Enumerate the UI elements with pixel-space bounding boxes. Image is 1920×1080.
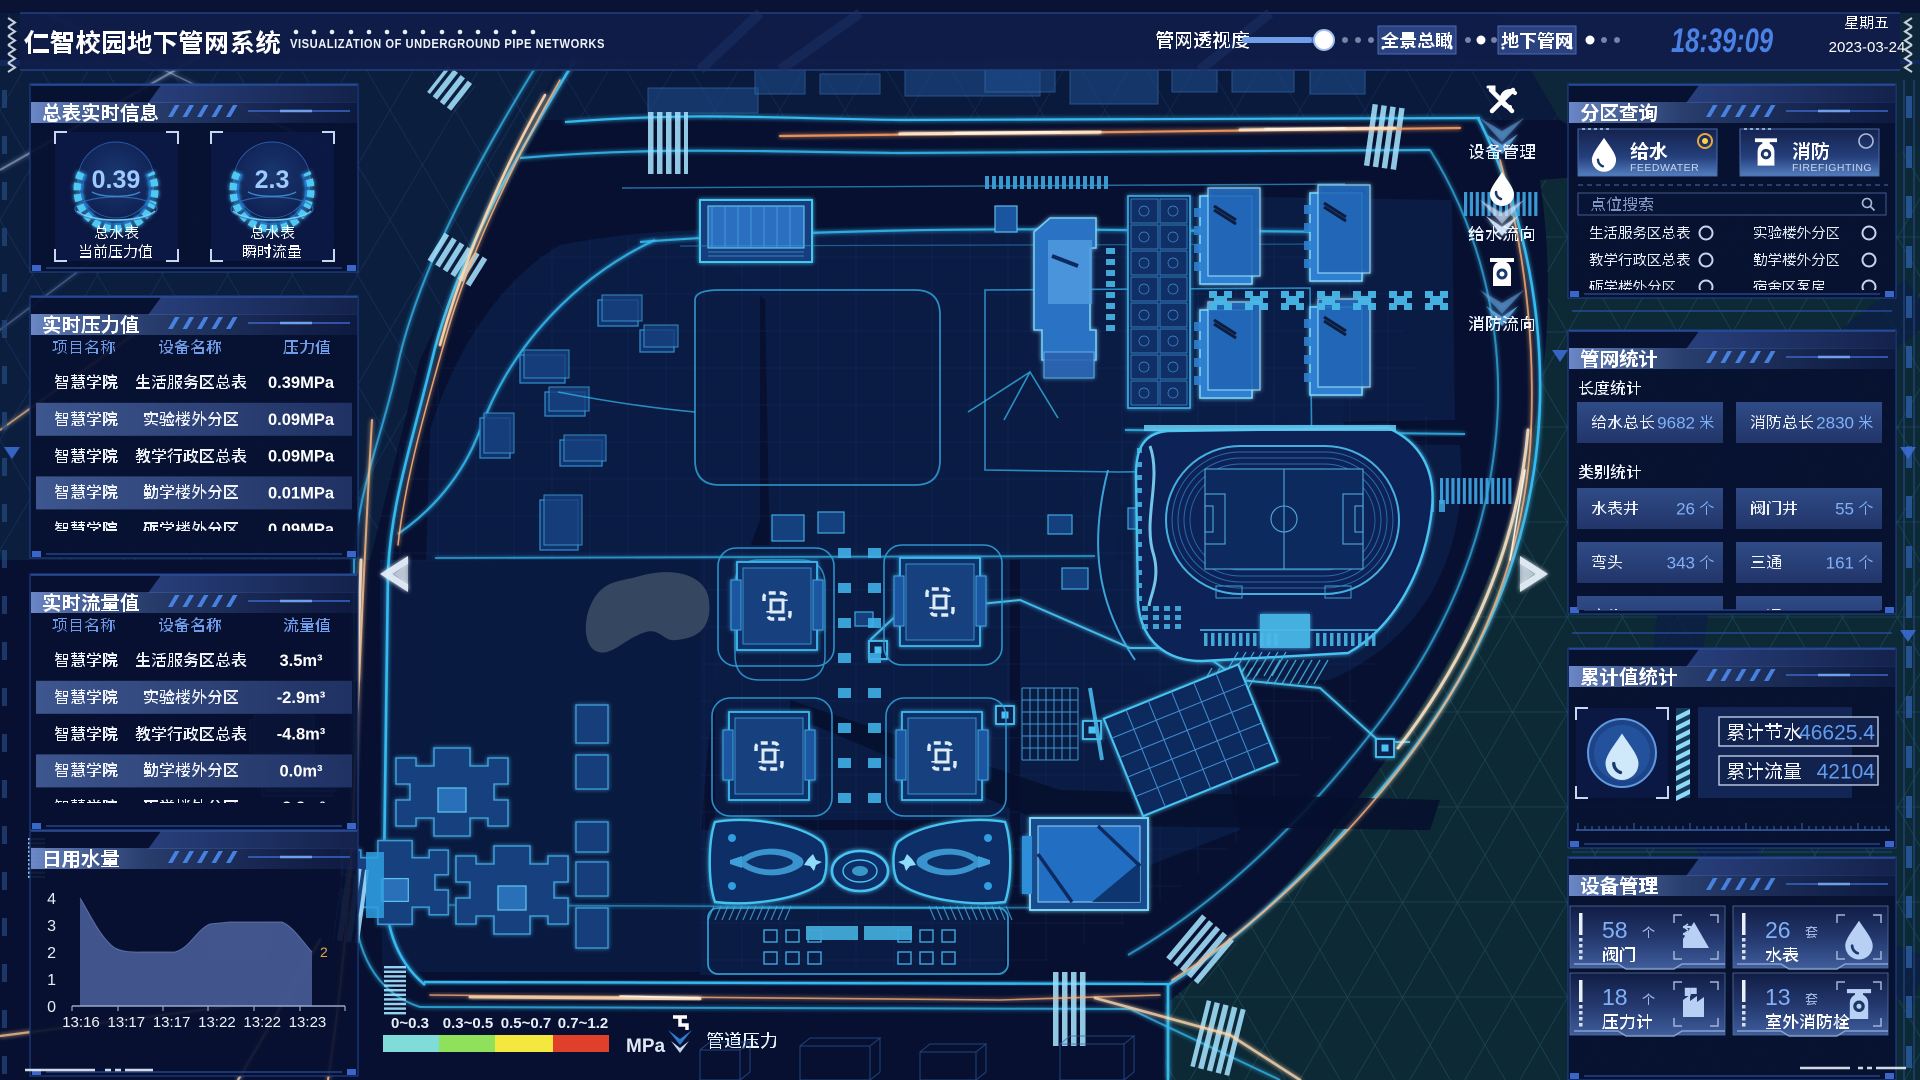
- svg-text:0.09MPa: 0.09MPa: [268, 411, 335, 429]
- svg-text:161: 161: [1826, 554, 1854, 573]
- svg-text:3.5m³: 3.5m³: [279, 652, 323, 670]
- svg-text:3: 3: [47, 918, 56, 935]
- svg-text:0.09MPa: 0.09MPa: [268, 448, 335, 466]
- svg-text:13: 13: [1765, 984, 1791, 1010]
- svg-text:0.0m³: 0.0m³: [279, 762, 323, 780]
- svg-text:26: 26: [1676, 500, 1695, 519]
- svg-text:46625.4: 46625.4: [1799, 722, 1875, 745]
- svg-text:2.3: 2.3: [255, 166, 290, 194]
- svg-text:MPa: MPa: [626, 1036, 666, 1057]
- svg-text:55: 55: [1835, 500, 1854, 519]
- svg-text:13:17: 13:17: [153, 1014, 191, 1031]
- svg-text:2830: 2830: [1816, 414, 1854, 433]
- svg-text:0: 0: [47, 999, 56, 1016]
- svg-text:0~0.3: 0~0.3: [391, 1015, 429, 1032]
- svg-text:0.3~0.5: 0.3~0.5: [443, 1015, 493, 1032]
- svg-text:2: 2: [320, 944, 328, 960]
- svg-text:42104: 42104: [1817, 761, 1876, 784]
- svg-text:-2.9m³: -2.9m³: [277, 689, 326, 707]
- svg-text:13:22: 13:22: [198, 1014, 236, 1031]
- svg-text:9682: 9682: [1657, 414, 1695, 433]
- svg-text:13:17: 13:17: [108, 1014, 146, 1031]
- svg-text:0.01MPa: 0.01MPa: [268, 484, 335, 502]
- svg-text:2: 2: [47, 945, 56, 962]
- svg-text:2023-03-24: 2023-03-24: [1829, 39, 1906, 56]
- svg-text:13:23: 13:23: [289, 1014, 327, 1031]
- svg-text:VISUALIZATION OF UNDERGROUND P: VISUALIZATION OF UNDERGROUND PIPE NETWOR…: [290, 37, 605, 51]
- svg-text:FIREFIGHTING: FIREFIGHTING: [1792, 162, 1872, 174]
- svg-text:0.39: 0.39: [92, 166, 141, 194]
- svg-text:18:39:09: 18:39:09: [1671, 22, 1773, 60]
- svg-text:0.7~1.2: 0.7~1.2: [558, 1015, 608, 1032]
- svg-text:18: 18: [1602, 984, 1628, 1010]
- svg-text:FEEDWATER: FEEDWATER: [1630, 162, 1699, 174]
- svg-text:1: 1: [47, 972, 56, 989]
- svg-text:13:16: 13:16: [62, 1014, 100, 1031]
- svg-text:13:22: 13:22: [243, 1014, 281, 1031]
- svg-text:-4.8m³: -4.8m³: [277, 726, 326, 744]
- svg-text:0.39MPa: 0.39MPa: [268, 374, 335, 392]
- svg-text:343: 343: [1667, 554, 1695, 573]
- svg-text:0.5~0.7: 0.5~0.7: [501, 1015, 551, 1032]
- svg-text:58: 58: [1602, 917, 1628, 943]
- svg-text:26: 26: [1765, 917, 1791, 943]
- svg-text:4: 4: [47, 891, 56, 908]
